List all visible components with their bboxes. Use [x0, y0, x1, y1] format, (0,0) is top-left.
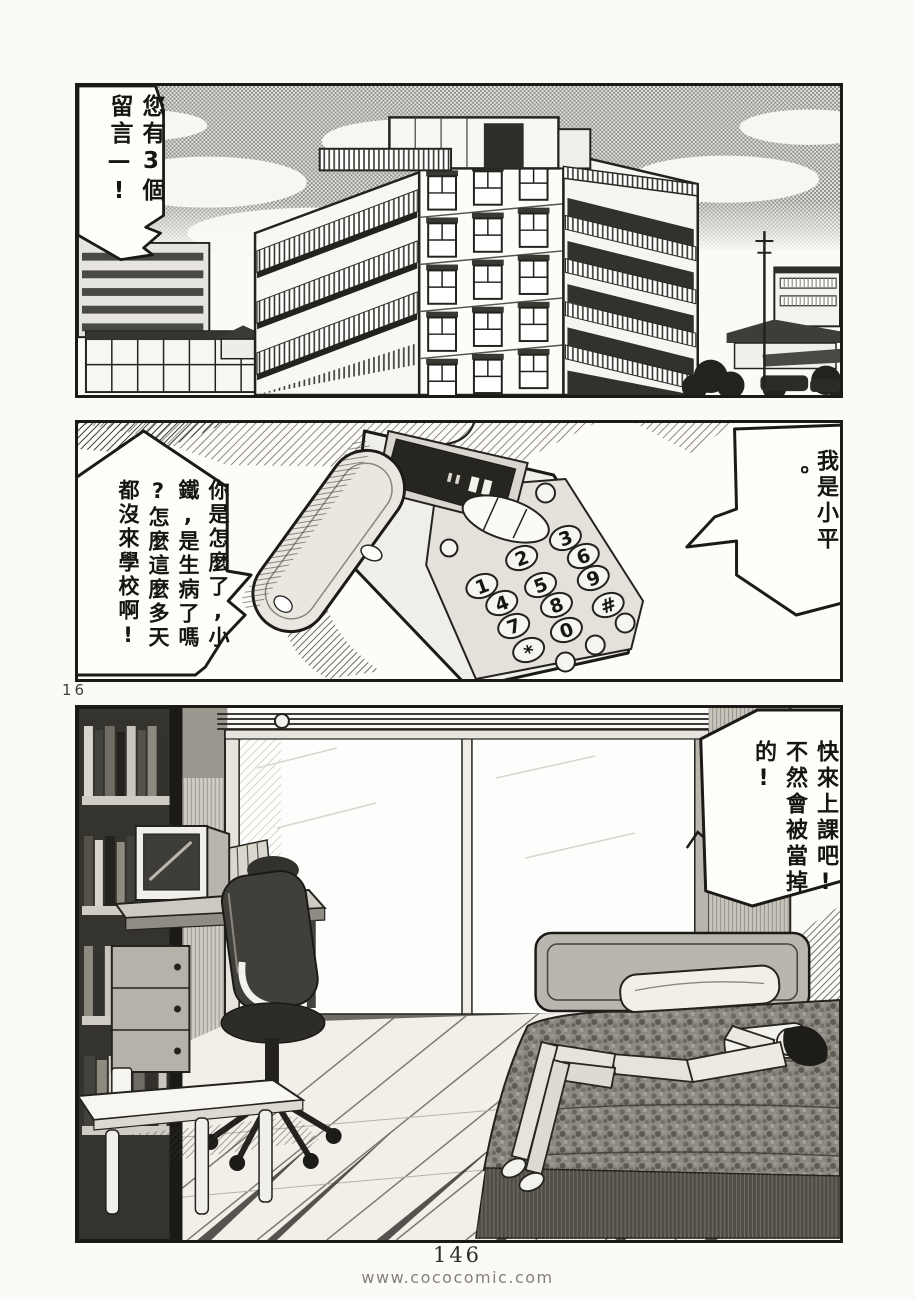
bubble-line: 的! — [752, 740, 774, 952]
panel-cityscape: 您有3個 留言—! — [75, 83, 843, 398]
drawer-cabinet — [112, 946, 190, 1072]
watermark: www.cococomic.com — [0, 1268, 915, 1287]
building-school-right — [774, 267, 840, 326]
bubble-line: 留言—! — [107, 94, 130, 264]
panel-bedroom: 快來上課吧! 不然會被當掉 的! — [75, 705, 843, 1243]
page-marker: 16 — [62, 681, 87, 699]
bubble-line: 您有3個 — [139, 94, 162, 264]
speech-bubble-caller-question: 你是怎麼了,小 鐵,是生病了嗎 ?怎麼這麼多天 都沒來學校啊! — [92, 479, 228, 679]
panel-phone-closeup: 1 2 3 4 5 6 7 8 9 * 0 # 你是怎麼了 — [75, 420, 843, 682]
bubble-line: 我是小平 — [814, 449, 836, 619]
bubble-line: 不然會被當掉 — [783, 740, 805, 952]
bubble-line: 你是怎麼了,小 — [207, 479, 228, 679]
bubble-line: 快來上課吧! — [814, 740, 836, 952]
bubble-line: 。 — [784, 449, 806, 619]
speech-bubble-caller-intro: 我是小平 。 — [770, 449, 836, 619]
manga-page: 您有3個 留言—! — [0, 0, 915, 1300]
bubble-line: ?怎麼這麼多天 — [147, 479, 168, 679]
speech-bubble-messages: 您有3個 留言—! — [84, 94, 162, 264]
bubble-line: 鐵,是生病了嗎 — [177, 479, 198, 679]
page-number: 146 — [0, 1243, 915, 1267]
bubble-line: 都沒來學校啊! — [117, 479, 138, 679]
speech-bubble-caller-urging: 快來上課吧! 不然會被當掉 的! — [720, 740, 836, 952]
cityscape-art — [78, 86, 840, 395]
building-main-front-face — [419, 153, 563, 395]
